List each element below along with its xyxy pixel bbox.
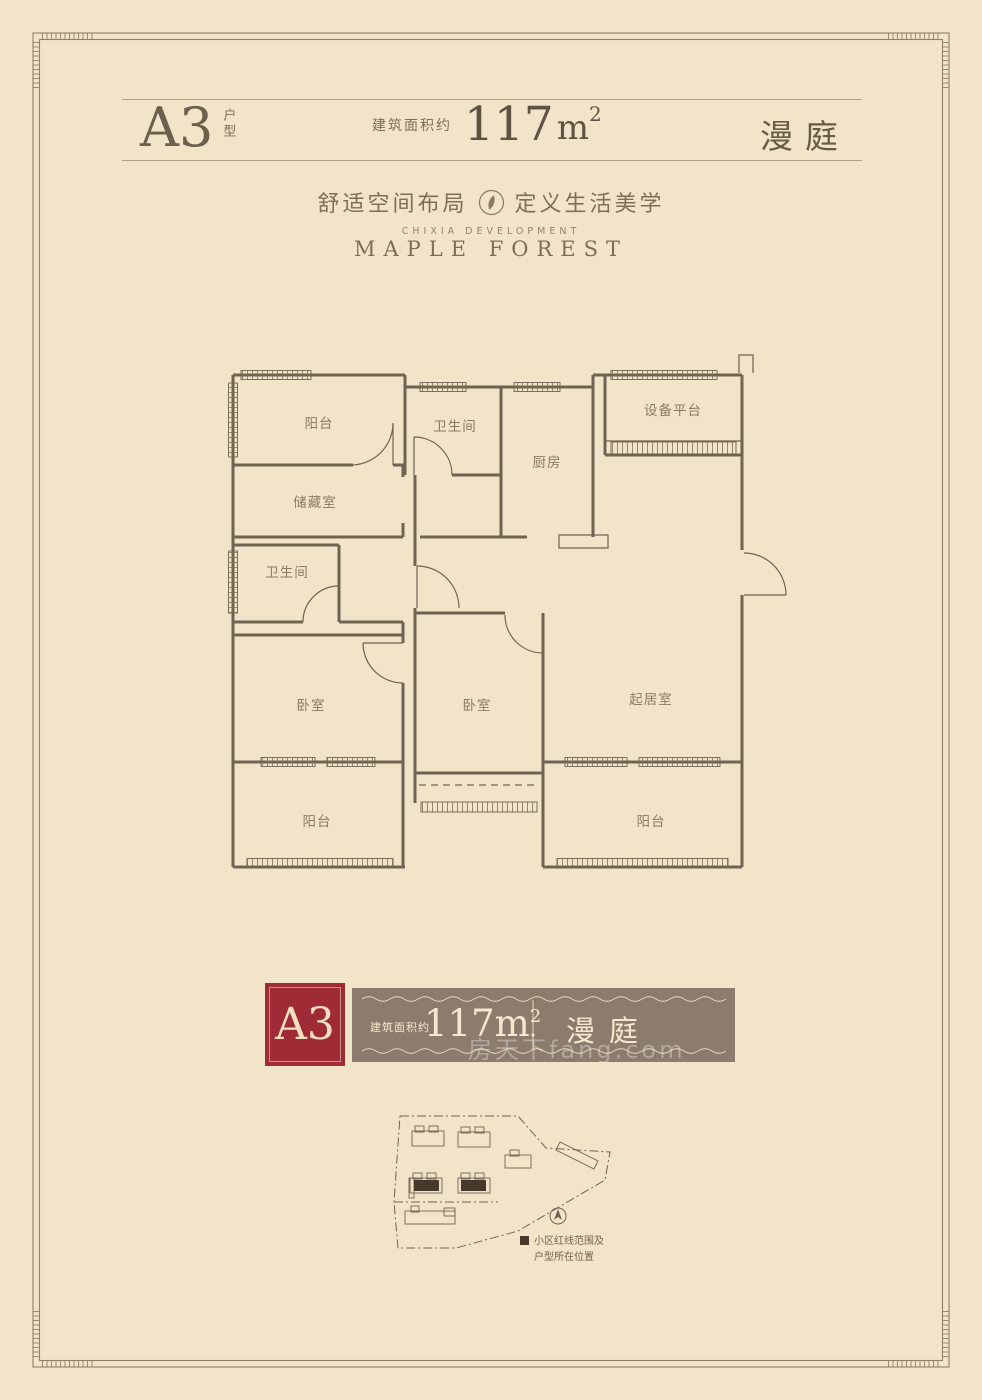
area-value: 117	[464, 100, 554, 150]
banner-unit-badge: A3	[265, 983, 345, 1066]
room-label-balcony-bottom-left: 阳台	[303, 814, 332, 830]
room-label-bedroom-middle: 卧室	[463, 697, 492, 714]
legend-line2: 户型所在位置	[534, 1250, 594, 1263]
site-buildings	[405, 1126, 598, 1224]
room-label-storage: 储藏室	[293, 494, 337, 511]
site-legend: 小区红线范围及 户型所在位置	[520, 1234, 604, 1263]
room-label-bath-top: 卫生间	[433, 419, 477, 435]
room-label-living-room: 起居室	[629, 691, 673, 708]
unit-type-label: 户型	[218, 108, 237, 140]
kitchen-step	[559, 535, 608, 548]
room-label-balcony-bottom-right: 阳台	[637, 814, 666, 830]
compass-icon	[550, 1208, 566, 1224]
area-prefix: 建筑面积约	[372, 115, 452, 135]
legend-swatch	[520, 1236, 529, 1245]
site-highlighted-units	[414, 1180, 486, 1191]
tagline-right: 定义生活美学	[515, 186, 665, 218]
developer-line: CHIXIA DEVELOPMENT	[0, 226, 982, 237]
top-right-column	[739, 355, 753, 373]
banner-unit-code: A3	[275, 999, 335, 1050]
poster-page: A3 户型 建筑面积约 117 m2 漫庭 舒适空间布局 定义生活美学 CHIX…	[0, 0, 982, 1400]
legend-line1: 小区红线范围及	[534, 1234, 604, 1247]
room-label-equipment-platform: 设备平台	[644, 402, 702, 419]
seal-leaf-icon	[478, 189, 505, 216]
tagline: 舒适空间布局 定义生活美学	[0, 186, 982, 218]
brand-line: MAPLE FOREST	[0, 237, 982, 261]
unit-code: A3	[140, 100, 213, 156]
unit-block: A3 户型	[140, 100, 237, 156]
room-label-bath-left: 卫生间	[265, 565, 309, 581]
windows	[229, 371, 737, 868]
room-label-balcony-top: 阳台	[305, 416, 334, 432]
room-label-kitchen: 厨房	[533, 455, 562, 471]
floor-plan: 阳台 卫生间 厨房 设备平台 储藏室 卫生间 卧室 卧室 起居室 阳台 阳台	[215, 345, 815, 895]
tagline-left: 舒适空间布局	[317, 186, 467, 218]
area-block: 建筑面积约 117 m2	[372, 100, 602, 150]
watermark: 房天下fang.com	[468, 1030, 686, 1065]
header-rule-bottom	[122, 160, 862, 161]
room-label-bedroom-left: 卧室	[297, 697, 326, 714]
banner-area-prefix: 建筑面积约	[370, 1019, 430, 1035]
area-unit: m2	[557, 102, 602, 148]
site-plan: 小区红线范围及 户型所在位置	[370, 1098, 700, 1288]
project-name: 漫庭	[760, 110, 850, 158]
